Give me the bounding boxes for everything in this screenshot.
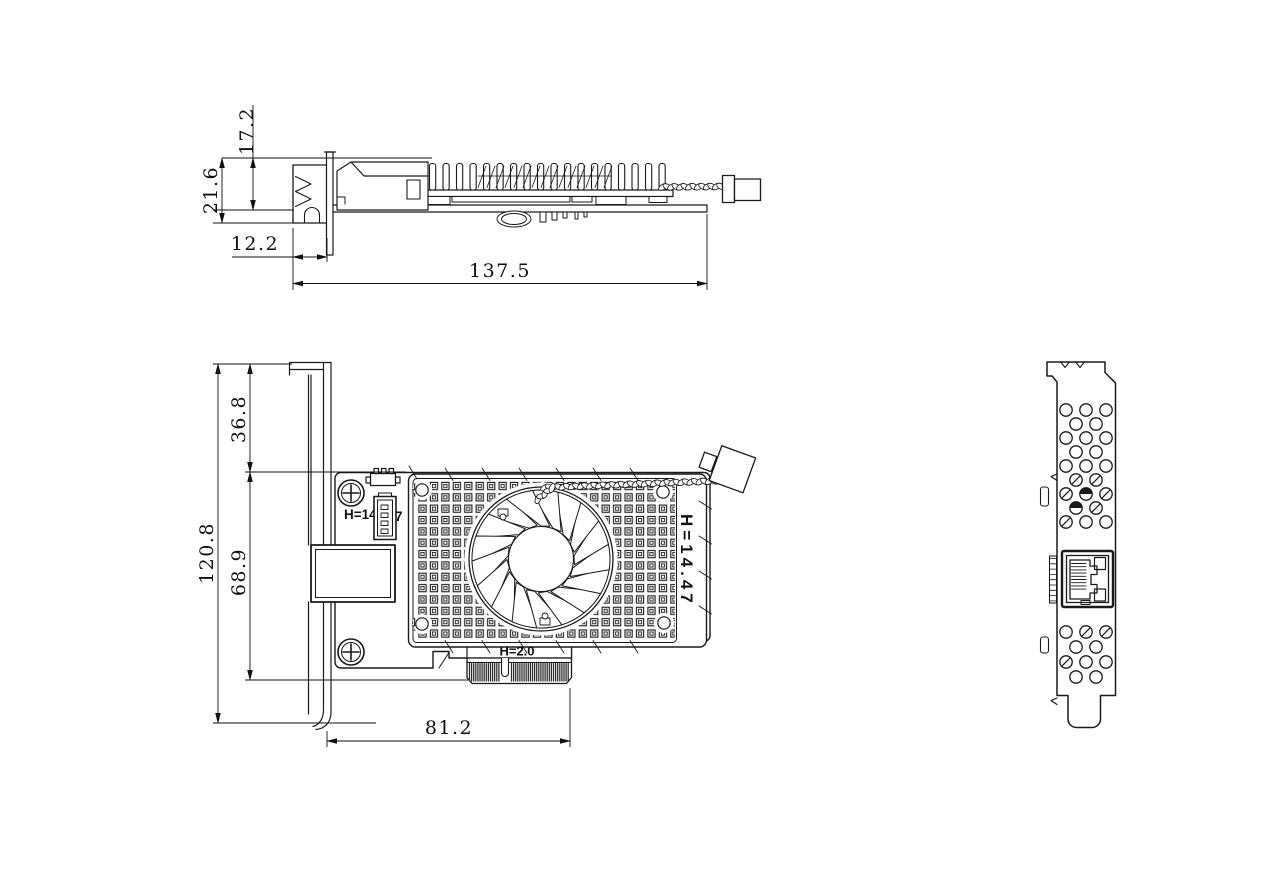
- dim-overall-height: 21.6: [200, 166, 222, 214]
- fan-cable-connector-side: [723, 176, 761, 203]
- label-edge-connector-height: H=2.0: [499, 644, 534, 659]
- fan-hub: [509, 527, 574, 592]
- mount-screw-bottom: [338, 639, 364, 665]
- front-component-view: H=14. 7 H=2.0 H=14.47: [290, 363, 756, 730]
- rj45-side: [293, 165, 330, 223]
- bracket-side-strip: [325, 152, 336, 255]
- side-profile-view: [293, 152, 761, 255]
- fan-shroud-side: [337, 162, 428, 210]
- label-fan-header-height-suffix: 7: [395, 509, 403, 524]
- bottom-components: [497, 211, 587, 227]
- heatsink-standoffs: [424, 197, 667, 205]
- dim-port-protrusion: 12.2: [231, 233, 279, 255]
- heatsink-base: [415, 190, 673, 197]
- cooling-fan: [469, 487, 613, 631]
- dim-edge-connector-extent: 81.2: [425, 717, 473, 739]
- dim-card-length: 137.5: [469, 260, 531, 282]
- rj45-rear: [1062, 551, 1113, 607]
- heatsink-fins: [416, 164, 665, 191]
- top-edge-component: [366, 469, 400, 486]
- emi-gasket-strip: [1050, 556, 1057, 603]
- fan-cable-side: [658, 182, 727, 192]
- edge-chamfer-line: [439, 653, 449, 669]
- bracket-rear-view: [1041, 362, 1116, 728]
- technical-drawing: 17.2 21.6 12.2 137.5: [0, 0, 1265, 893]
- dim-pcb-height: 68.9: [228, 548, 250, 596]
- technical-drawing-page: 17.2 21.6 12.2 137.5: [0, 0, 1265, 893]
- pcie-key-notch: [502, 658, 509, 677]
- dim-heatsink-height: 17.2: [236, 107, 258, 155]
- dim-bracket-top-to-pcb: 36.8: [228, 395, 250, 443]
- label-fan-assembly-height: H=14.47: [677, 514, 696, 607]
- mount-screw-top: [338, 480, 364, 506]
- fan-header-connector: [374, 493, 396, 540]
- rj45-front: [311, 545, 395, 602]
- dim-bracket-height: 120.8: [196, 522, 218, 584]
